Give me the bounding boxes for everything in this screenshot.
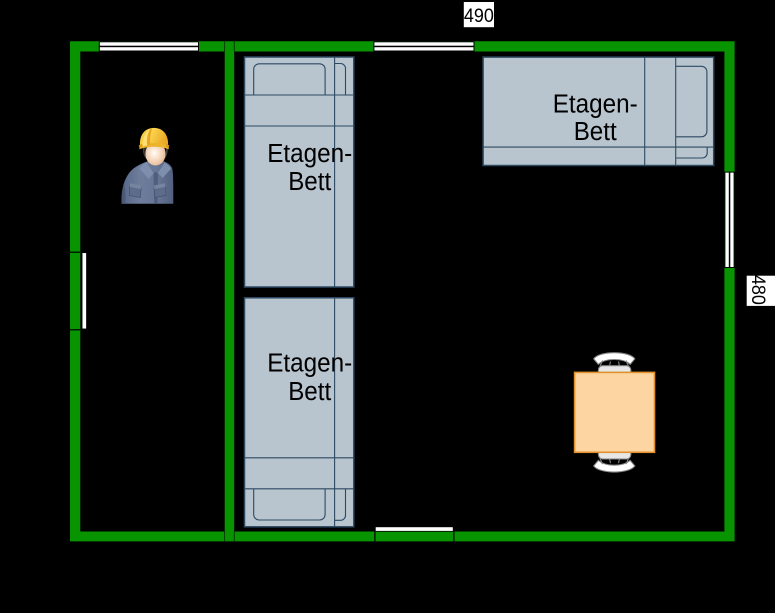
svg-text:490: 490: [464, 6, 494, 27]
svg-text:Bett: Bett: [574, 118, 617, 146]
svg-text:Etagen-: Etagen-: [267, 350, 352, 378]
svg-text:Etagen-: Etagen-: [553, 90, 638, 118]
svg-text:Etagen-: Etagen-: [267, 140, 352, 168]
svg-text:Bett: Bett: [288, 378, 331, 406]
svg-text:Bett: Bett: [288, 168, 331, 196]
svg-text:480: 480: [747, 275, 768, 305]
